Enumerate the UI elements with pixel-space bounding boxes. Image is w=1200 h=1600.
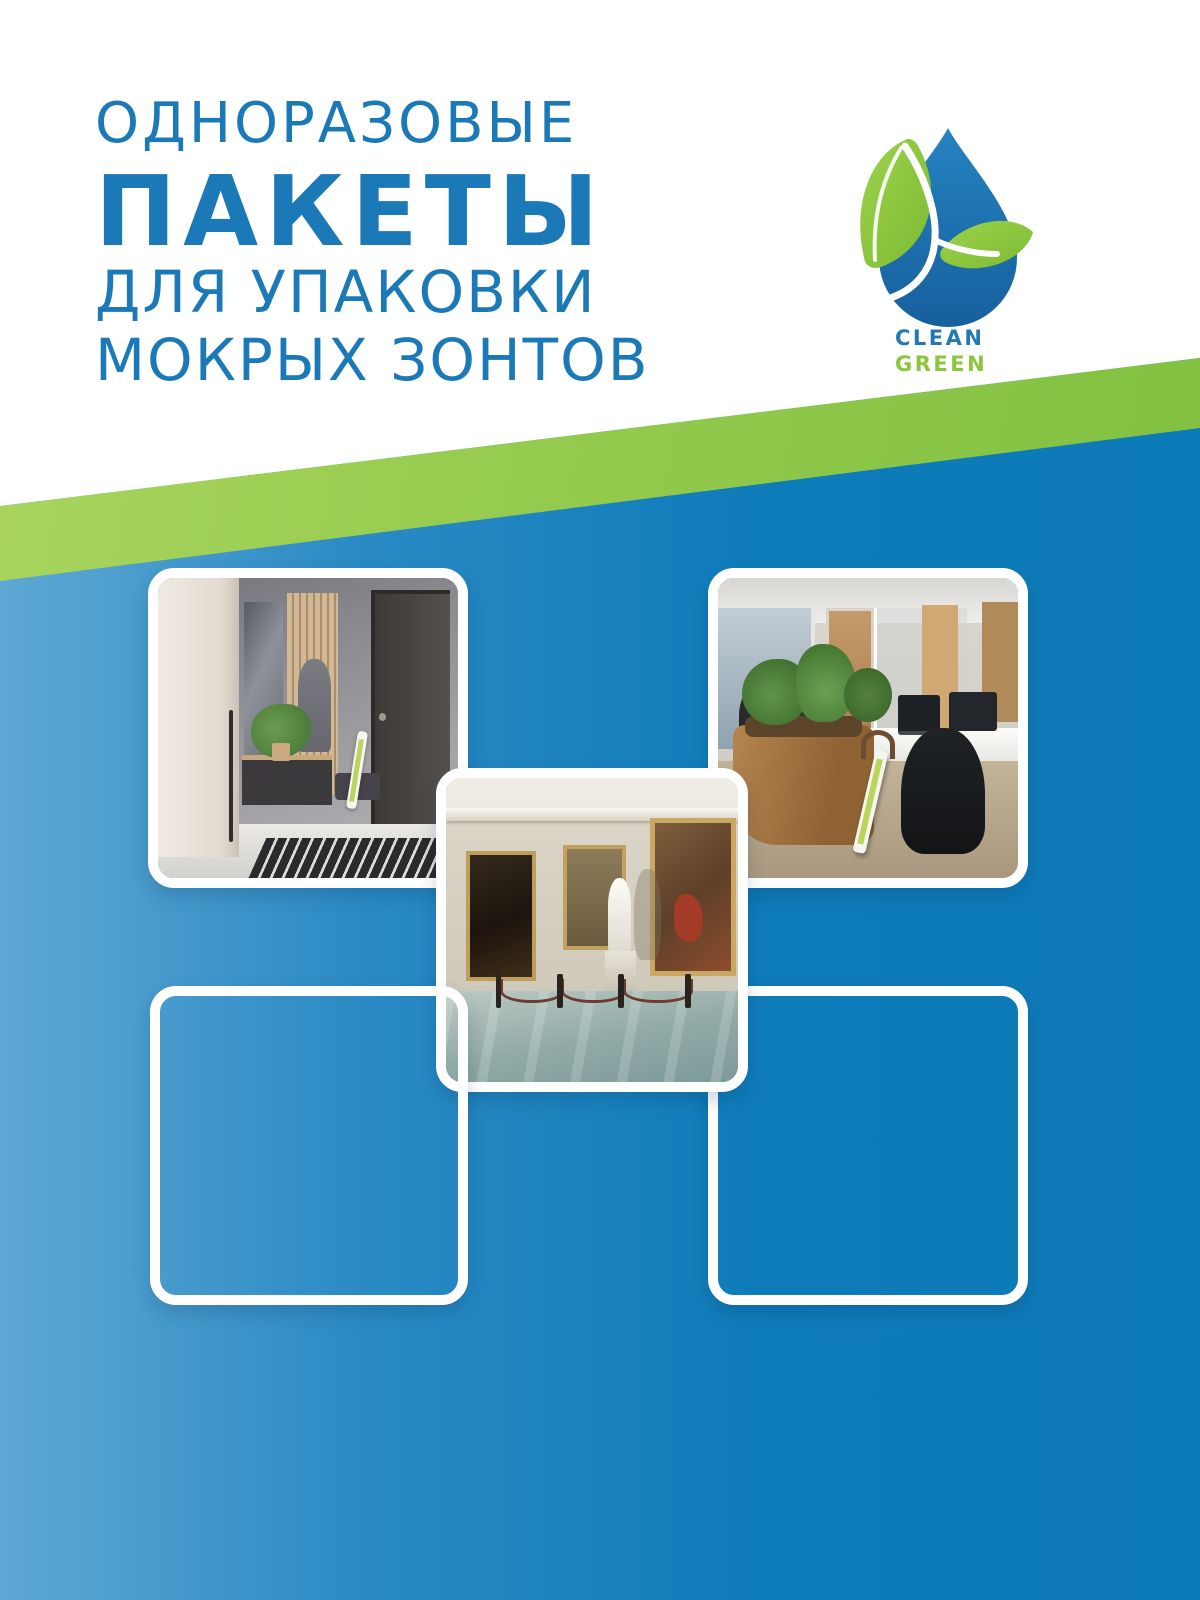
photo-medical-reception xyxy=(708,986,1028,1305)
photo-cafe xyxy=(150,986,468,1305)
photo-museum-gallery xyxy=(436,768,748,1092)
clean-green-logo: CLEAN GREEN xyxy=(845,116,1055,396)
title-line-2: ПАКЕТЫ xyxy=(95,163,605,260)
photo-home-hallway xyxy=(148,568,468,888)
photo-office xyxy=(708,568,1028,888)
title-line-4: МОКРЫХ ЗОНТОВ xyxy=(95,331,650,389)
title-line-3: ДЛЯ УПАКОВКИ xyxy=(95,263,596,321)
logo-text-green: GREEN xyxy=(895,354,987,375)
water-drop-leaves-icon xyxy=(845,116,1045,331)
title-line-1: ОДНОРАЗОВЫЕ xyxy=(95,96,577,152)
poster: ОДНОРАЗОВЫЕ ПАКЕТЫ ДЛЯ УПАКОВКИ МОКРЫХ З… xyxy=(0,0,1200,1600)
logo-text-clean: CLEAN xyxy=(895,328,984,349)
